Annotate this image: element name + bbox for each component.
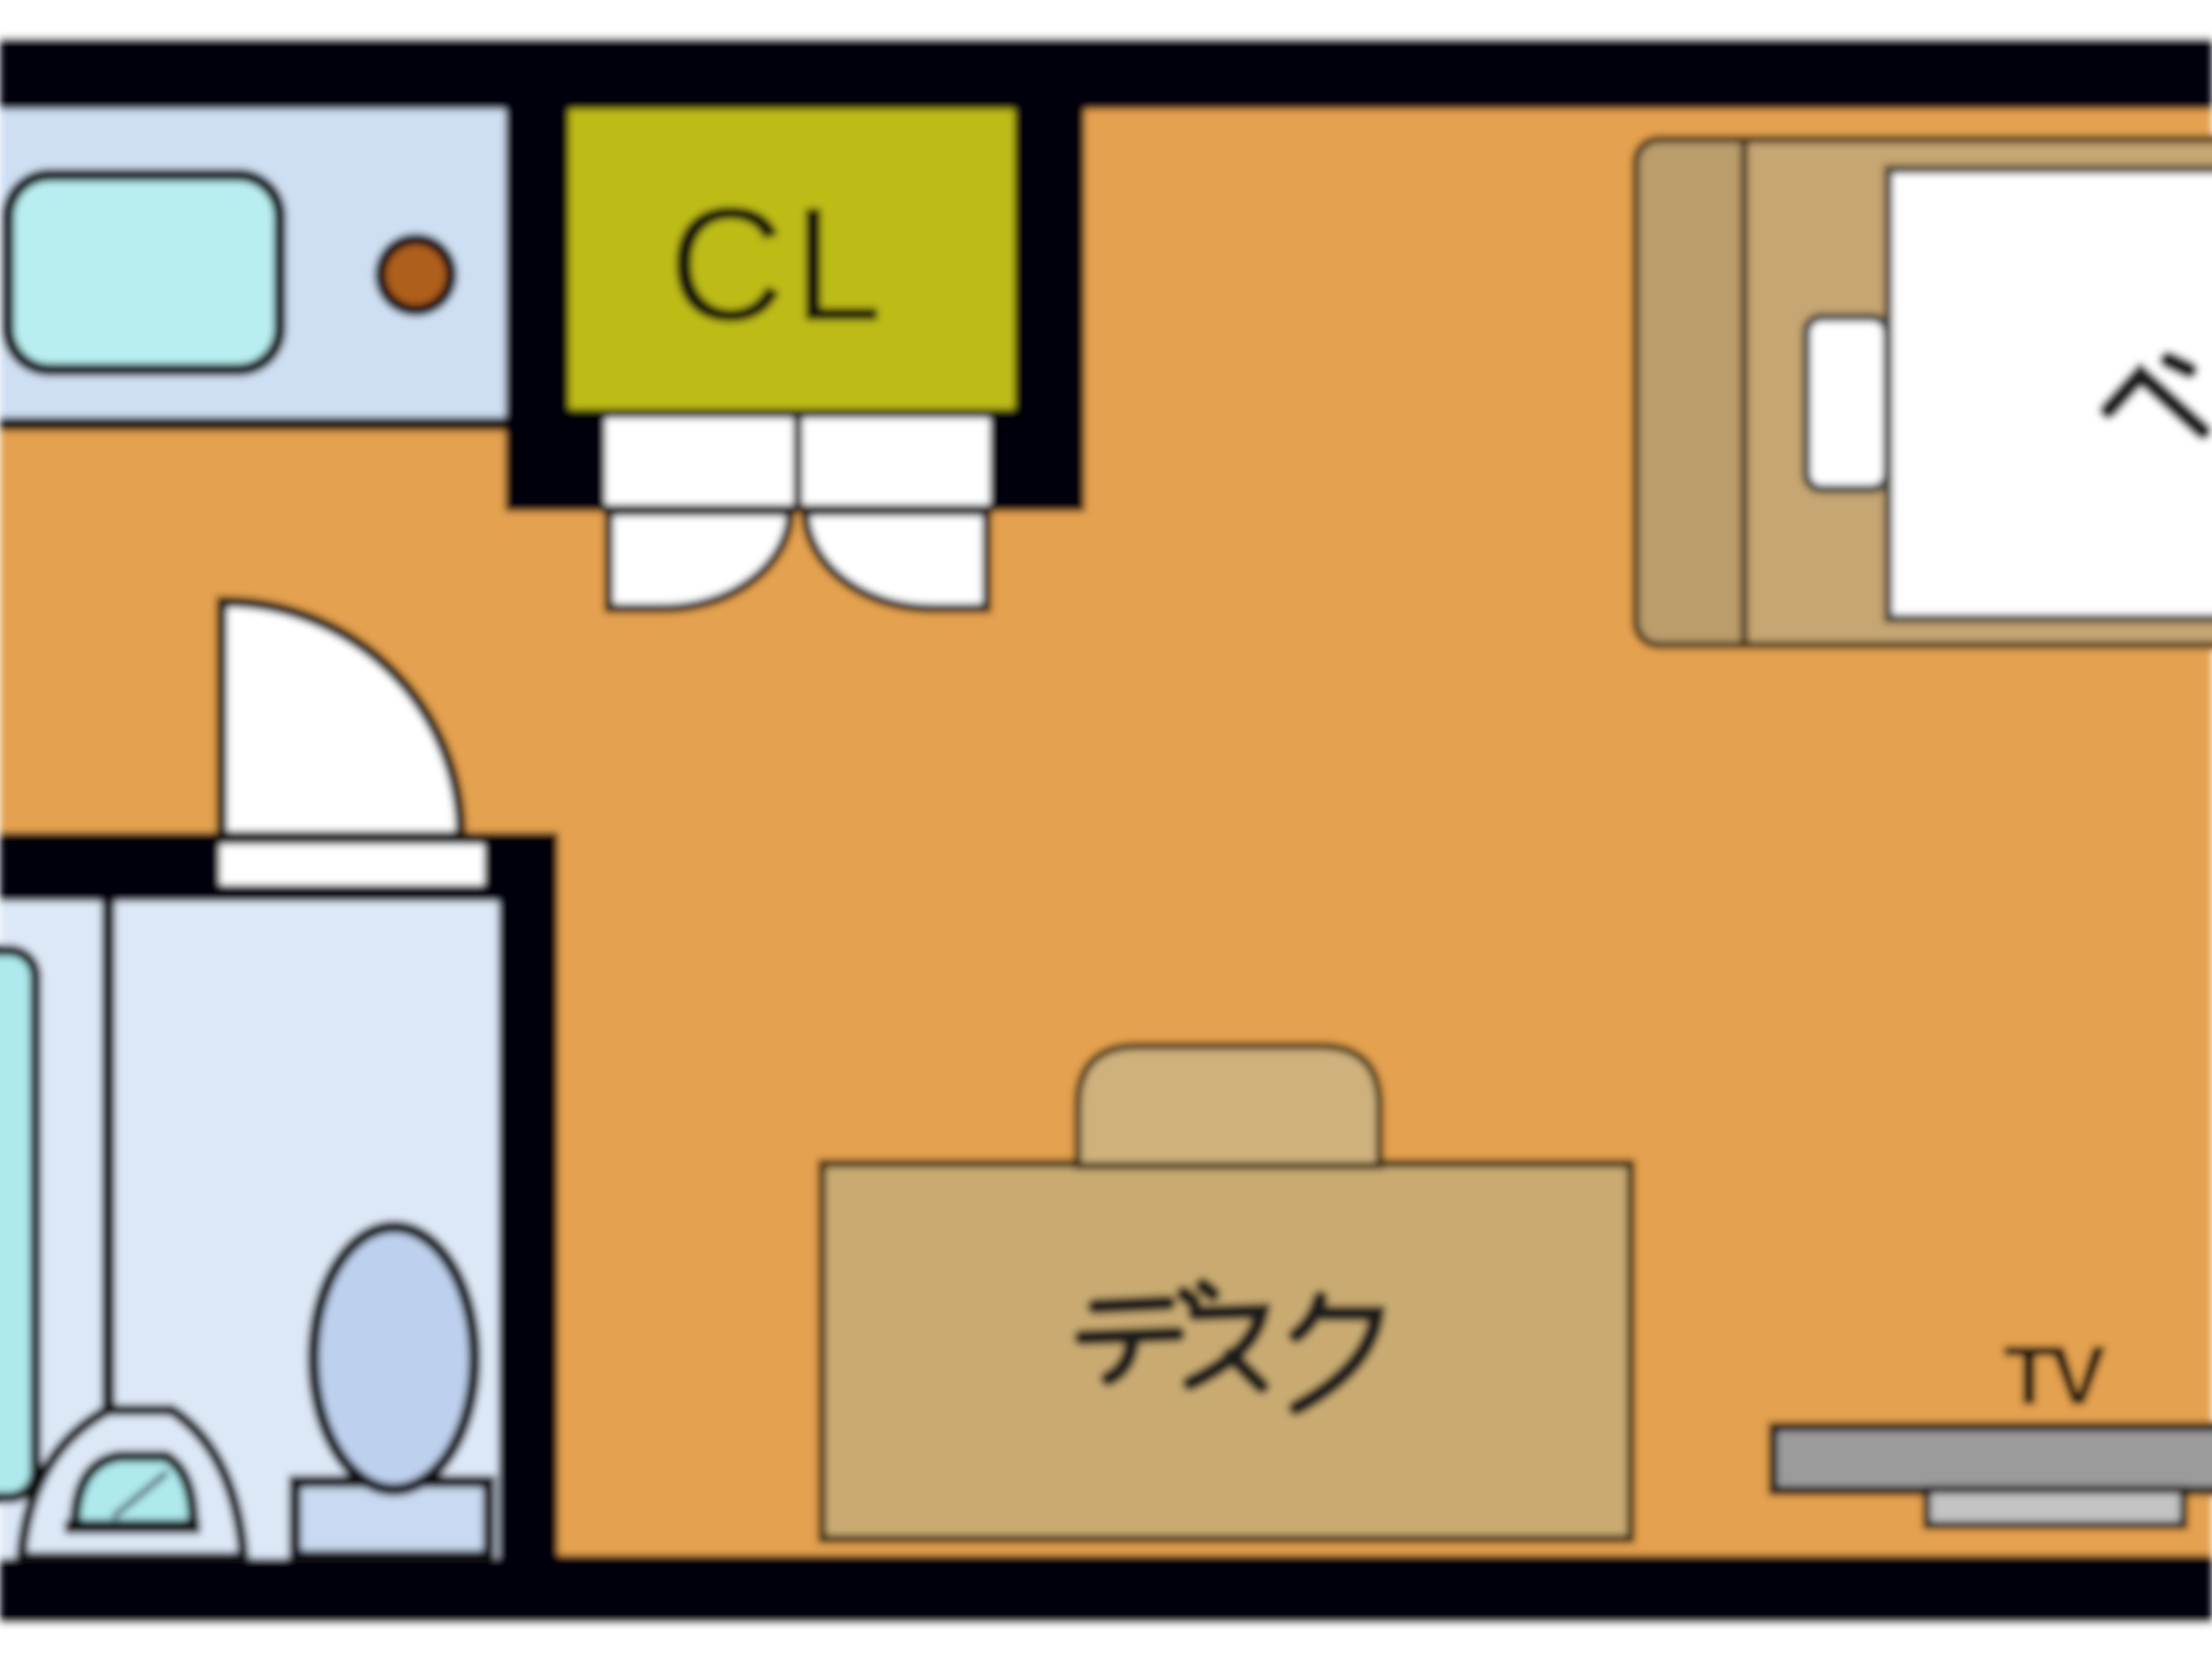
svg-text:CL: CL bbox=[668, 173, 890, 355]
svg-text:TV: TV bbox=[2003, 1328, 2106, 1422]
